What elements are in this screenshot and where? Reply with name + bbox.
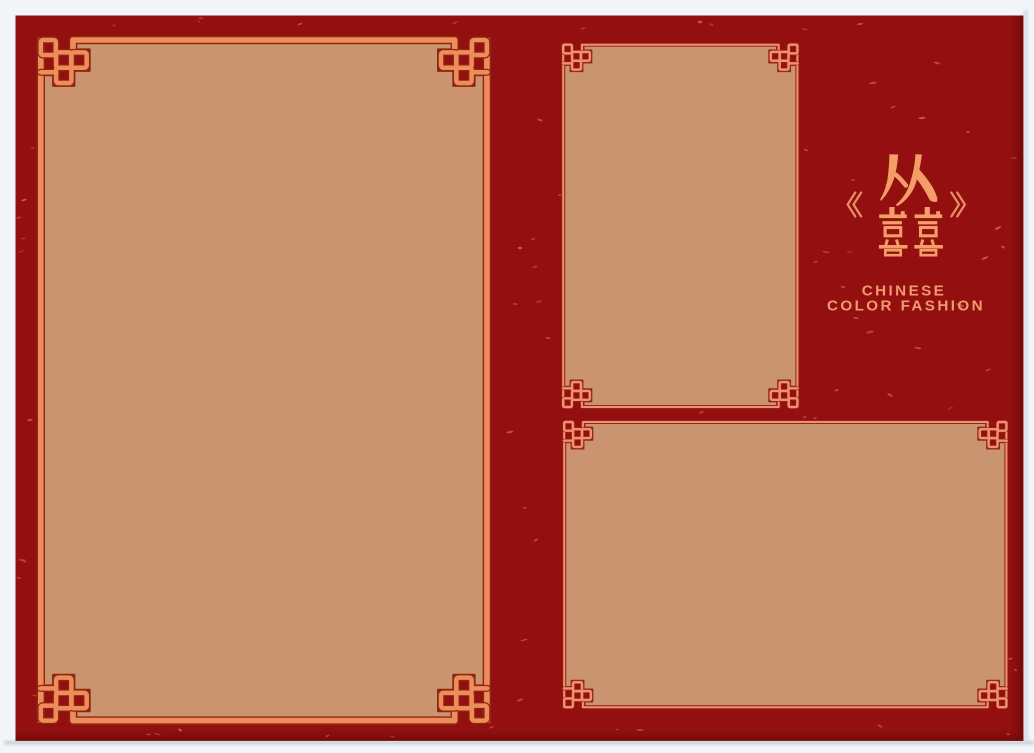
svg-text:COLOR FASHION: COLOR FASHION [827,297,985,314]
